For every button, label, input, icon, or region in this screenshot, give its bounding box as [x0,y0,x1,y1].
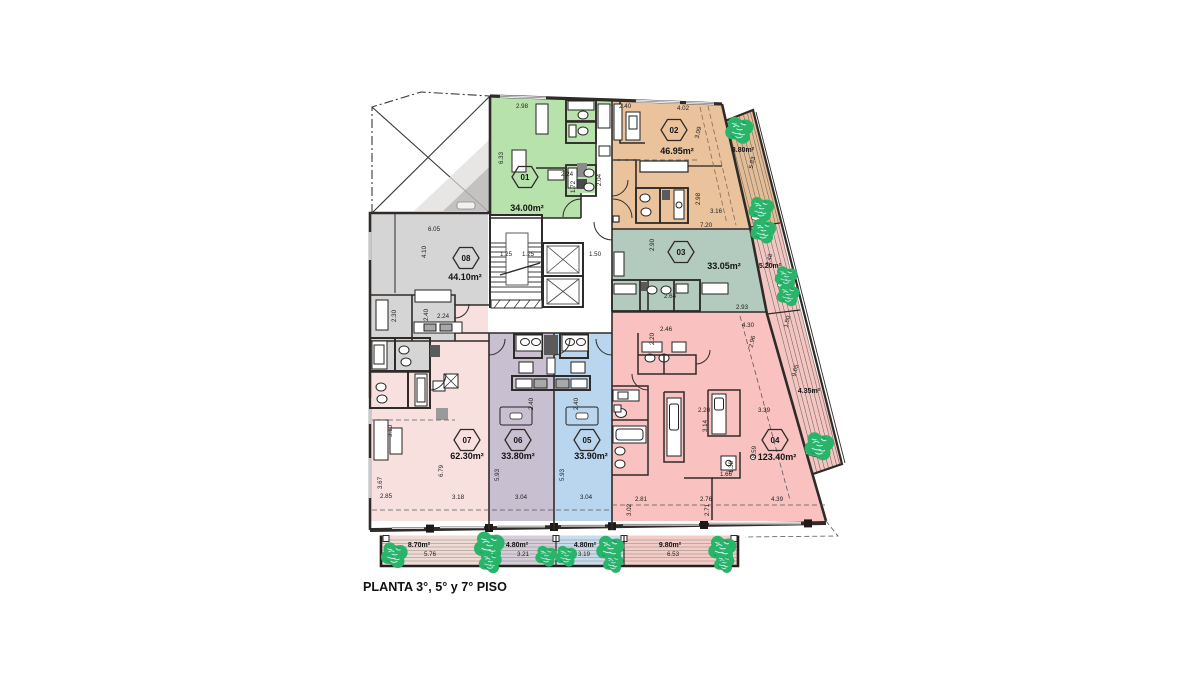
svg-text:2.46: 2.46 [660,326,673,333]
svg-text:02: 02 [670,126,679,135]
svg-text:44.10m²: 44.10m² [448,272,482,282]
svg-text:PLANTA 3°, 5° y 7° PISO: PLANTA 3°, 5° y 7° PISO [363,580,507,594]
svg-text:2.40: 2.40 [573,397,580,410]
svg-text:2.98: 2.98 [695,192,702,205]
svg-text:4.80m²: 4.80m² [506,542,529,549]
svg-text:08: 08 [462,254,471,263]
svg-text:6.33: 6.33 [498,151,505,164]
svg-text:6.05: 6.05 [428,226,441,233]
svg-text:1.50: 1.50 [589,251,602,258]
svg-text:3.04: 3.04 [515,494,528,501]
svg-text:8.59: 8.59 [751,445,758,458]
svg-text:2.24: 2.24 [437,313,450,320]
svg-text:4.02: 4.02 [677,105,690,112]
svg-text:6.53: 6.53 [667,551,680,558]
svg-text:46.95m²: 46.95m² [660,146,694,156]
svg-text:2.71: 2.71 [704,503,711,516]
svg-text:2.76: 2.76 [700,496,713,503]
svg-text:8.70m²: 8.70m² [408,542,431,549]
svg-text:3.04: 3.04 [580,494,593,501]
svg-text:05: 05 [583,436,592,445]
svg-text:04: 04 [771,436,780,445]
svg-text:2.93: 2.93 [736,304,749,311]
svg-text:2.40: 2.40 [619,103,632,110]
svg-text:2.40: 2.40 [423,308,430,321]
svg-text:8.80m²: 8.80m² [732,147,755,154]
svg-text:01: 01 [521,173,530,182]
svg-text:4.39: 4.39 [771,496,784,503]
svg-text:3.10: 3.10 [387,424,394,437]
svg-text:03: 03 [677,248,686,257]
svg-text:33.05m²: 33.05m² [707,261,741,271]
svg-text:2.85: 2.85 [380,493,393,500]
svg-text:5.93: 5.93 [494,468,501,481]
svg-text:2.24: 2.24 [561,171,574,178]
svg-text:1.38: 1.38 [728,460,735,473]
svg-text:123.40m²: 123.40m² [758,452,797,462]
svg-text:34.00m²: 34.00m² [510,203,544,213]
svg-text:2.20: 2.20 [649,332,656,345]
svg-text:2.04: 2.04 [596,173,603,186]
svg-text:06: 06 [514,436,523,445]
svg-text:62.30m²: 62.30m² [450,451,484,461]
svg-text:5.76: 5.76 [424,551,437,558]
svg-text:3.18: 3.18 [452,494,465,501]
svg-text:2.20: 2.20 [698,407,711,414]
svg-text:4.35m²: 4.35m² [798,388,821,395]
svg-text:3.19: 3.19 [578,551,591,558]
svg-text:9.80m²: 9.80m² [659,542,682,549]
svg-text:2.81: 2.81 [635,496,648,503]
svg-text:4.80m²: 4.80m² [574,542,597,549]
svg-text:1.25: 1.25 [500,251,513,258]
svg-text:33.90m²: 33.90m² [574,451,608,461]
svg-text:2.30: 2.30 [391,309,398,322]
svg-text:6.79: 6.79 [438,464,445,477]
svg-text:1.72: 1.72 [570,180,577,193]
svg-text:07: 07 [463,436,472,445]
svg-text:3.14: 3.14 [702,419,709,432]
svg-text:4.30: 4.30 [742,322,755,329]
svg-text:2.40: 2.40 [528,397,535,410]
svg-text:2.98: 2.98 [516,103,529,110]
svg-text:3.21: 3.21 [517,551,530,558]
svg-text:2.90: 2.90 [649,238,656,251]
svg-text:1.25: 1.25 [522,251,535,258]
svg-text:3.02: 3.02 [626,503,633,516]
svg-text:3.39: 3.39 [758,407,771,414]
svg-text:3.16: 3.16 [710,208,723,215]
svg-text:3.67: 3.67 [377,476,384,489]
svg-text:2.64: 2.64 [664,293,677,300]
svg-text:4.10: 4.10 [421,245,428,258]
svg-text:7.20: 7.20 [700,222,713,229]
svg-text:33.80m²: 33.80m² [501,451,535,461]
svg-text:5.93: 5.93 [559,468,566,481]
